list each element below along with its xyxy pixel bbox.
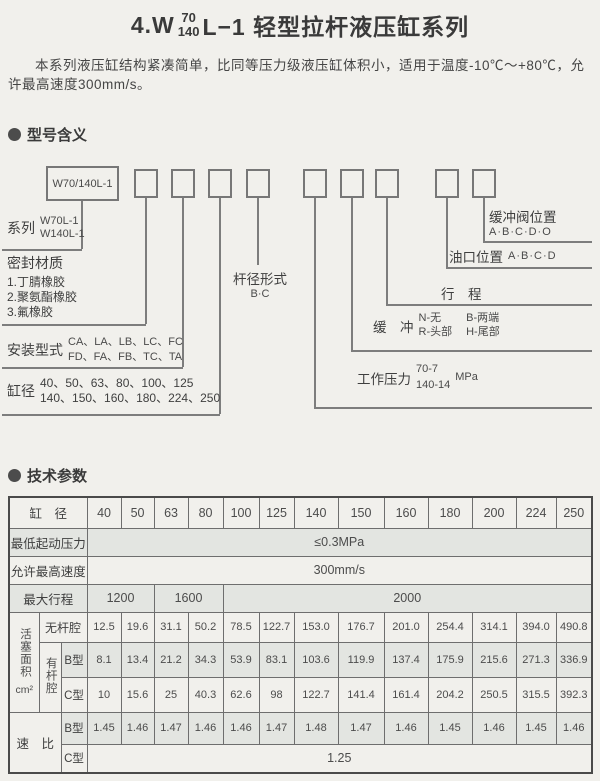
seal-label: 密封材质 <box>7 253 77 273</box>
row-label: B型 <box>61 642 87 677</box>
value-cell: 10 <box>87 677 121 712</box>
rod-side-vertical-text: 有杆腔 <box>44 657 56 695</box>
value-cell: 314.1 <box>472 612 516 642</box>
value-cell: 1.47 <box>259 712 294 744</box>
min-start-pressure-value: ≤0.3MPa <box>87 528 592 556</box>
connector-line <box>2 414 220 416</box>
value-cell: 103.6 <box>294 642 338 677</box>
tech-params-table: 缸 径 40506380100125140150160180200224250 … <box>8 496 593 774</box>
max-speed-row: 允许最高速度 300mm/s <box>9 556 592 584</box>
cushion-valve-options: A·B·C·D·O <box>489 226 557 239</box>
bore-header-cell: 40 <box>87 497 121 528</box>
connector-line <box>386 304 592 306</box>
code-box-pressure <box>303 169 327 198</box>
value-cell: 40.3 <box>188 677 223 712</box>
speed-ratio-c-row: C型 1.25 <box>9 744 592 773</box>
bore-label-group: 缸径 40、50、63、80、100、125 140、150、160、180、2… <box>7 376 220 406</box>
section-bullet-icon <box>8 469 21 482</box>
bore-header-cell: 63 <box>154 497 188 528</box>
cushion-option: H-尾部 <box>466 326 500 339</box>
value-cell: 336.9 <box>556 642 592 677</box>
cushion-valve-label: 缓冲阀位置 <box>489 206 557 226</box>
connector-line <box>351 198 353 350</box>
connector-line <box>386 198 388 304</box>
value-cell: 1.46 <box>384 712 428 744</box>
piston-area-group-label: 活塞面积 cm² <box>9 612 39 712</box>
row-label: C型 <box>61 744 87 773</box>
bore-header-label: 缸 径 <box>9 497 87 528</box>
pressure-label-group: 工作压力 70-7 140-14 MPa <box>357 363 478 392</box>
value-cell: 1.46 <box>472 712 516 744</box>
value-cell: 201.0 <box>384 612 428 642</box>
bore-header-cell: 224 <box>516 497 556 528</box>
max-stroke-value: 1600 <box>154 584 223 612</box>
value-cell: 254.4 <box>428 612 472 642</box>
model-code-diagram: W70/140L-1 系列 W70L-1 <box>0 157 600 419</box>
pressure-label: 工作压力 <box>357 368 411 388</box>
cushion-label-group: 缓 冲 N-无 B-两端 R-头部 H-尾部 <box>373 312 500 339</box>
connector-line <box>2 367 183 369</box>
value-cell: 315.5 <box>516 677 556 712</box>
value-cell: 1.46 <box>556 712 592 744</box>
title-fraction-bottom: 140 <box>178 25 200 39</box>
rod-side-group-label: 有杆腔 <box>39 642 61 712</box>
value-cell: 122.7 <box>294 677 338 712</box>
series-item: W70L-1 <box>40 215 85 228</box>
cushion-option: R-头部 <box>419 326 453 339</box>
value-cell: 15.6 <box>121 677 154 712</box>
value-cell: 176.7 <box>338 612 384 642</box>
speed-ratio-group-label: 速 比 <box>9 712 61 773</box>
value-cell: 1.47 <box>338 712 384 744</box>
pressure-unit: MPa <box>455 371 478 384</box>
value-cell: 1.46 <box>188 712 223 744</box>
value-cell: 83.1 <box>259 642 294 677</box>
code-box-bore <box>208 169 232 198</box>
value-cell: 1.48 <box>294 712 338 744</box>
value-cell: 1.45 <box>516 712 556 744</box>
mounting-codes: CA、LA、LB、LC、FC <box>68 335 183 350</box>
connector-line <box>314 198 316 407</box>
title-fraction: 70 140 <box>178 11 200 40</box>
connector-line <box>483 241 592 243</box>
connector-line <box>145 198 147 324</box>
bore-sizes: 40、50、63、80、100、125 <box>40 376 220 391</box>
value-cell: 271.3 <box>516 642 556 677</box>
bore-header-cell: 80 <box>188 497 223 528</box>
piston-area-rod-b-row: 有杆腔 B型 8.113.421.234.353.983.1103.6119.9… <box>9 642 592 677</box>
value-cell: 1.47 <box>154 712 188 744</box>
value-cell: 394.0 <box>516 612 556 642</box>
seal-label-group: 密封材质 1.丁腈橡胶 2.聚氨酯橡胶 3.氟橡胶 <box>7 253 77 320</box>
value-cell: 161.4 <box>384 677 428 712</box>
value-cell: 250.5 <box>472 677 516 712</box>
bore-header-cell: 50 <box>121 497 154 528</box>
bore-header-cell: 150 <box>338 497 384 528</box>
cushion-option: N-无 <box>419 312 453 325</box>
value-cell: 137.4 <box>384 642 428 677</box>
value-cell: 1.45 <box>428 712 472 744</box>
rod-type-options: B·C <box>224 288 296 301</box>
connector-line <box>314 407 592 409</box>
value-cell: 21.2 <box>154 642 188 677</box>
seal-item: 2.聚氨酯橡胶 <box>7 290 77 305</box>
row-label: B型 <box>61 712 87 744</box>
speed-ratio-b-row: 速 比 B型 1.451.461.471.461.461.471.481.471… <box>9 712 592 744</box>
table-header-row: 缸 径 40506380100125140150160180200224250 <box>9 497 592 528</box>
value-cell: 25 <box>154 677 188 712</box>
code-box-cushion <box>340 169 364 198</box>
piston-area-rod-c-row: C型 1015.62540.362.698122.7141.4161.4204.… <box>9 677 592 712</box>
value-cell: 34.3 <box>188 642 223 677</box>
mounting-label: 安装型式 <box>7 340 63 360</box>
connector-line <box>483 198 485 241</box>
intro-paragraph: 本系列液压缸结构紧凑简单，比同等压力级液压缸体积小，适用于温度-10℃～+80℃… <box>8 56 592 94</box>
value-cell: 50.2 <box>188 612 223 642</box>
piston-area-vertical-text: 活塞面积 <box>19 628 31 678</box>
value-cell: 119.9 <box>338 642 384 677</box>
max-stroke-value: 1200 <box>87 584 154 612</box>
mounting-codes: FD、FA、FB、TC、TA <box>68 350 183 365</box>
bore-sizes: 140、150、160、180、224、250 <box>40 391 220 406</box>
seal-item: 1.丁腈橡胶 <box>7 275 77 290</box>
min-start-pressure-row: 最低起动压力 ≤0.3MPa <box>9 528 592 556</box>
page-title: 4.W 70 140 L−1 轻型拉杆液压缸系列 <box>0 0 600 42</box>
max-stroke-value: 2000 <box>223 584 592 612</box>
value-cell: 490.8 <box>556 612 592 642</box>
connector-line <box>2 249 82 251</box>
pressure-range: 140-14 <box>416 379 450 392</box>
code-box-stroke <box>375 169 399 198</box>
value-cell: 98 <box>259 677 294 712</box>
title-fraction-top: 70 <box>181 11 195 25</box>
series-item: W140L-1 <box>40 228 85 241</box>
row-label: C型 <box>61 677 87 712</box>
code-box-rod-type <box>246 169 270 198</box>
value-cell: 1.46 <box>121 712 154 744</box>
title-prefix: 4.W <box>131 12 175 39</box>
rod-type-label-group: 杆径形式 B·C <box>224 268 296 301</box>
value-cell: 175.9 <box>428 642 472 677</box>
pressure-range: 70-7 <box>416 363 450 376</box>
section-bullet-icon <box>8 128 21 141</box>
value-cell: 204.2 <box>428 677 472 712</box>
value-cell: 62.6 <box>223 677 259 712</box>
code-box-seal <box>134 169 158 198</box>
port-position-label: 油口位置 <box>449 246 503 266</box>
piston-area-unit: cm² <box>10 684 39 696</box>
rod-type-label: 杆径形式 <box>224 268 296 288</box>
row-label: 允许最高速度 <box>9 556 87 584</box>
section-tech-params: 技术参数 <box>8 465 600 486</box>
row-label: 无杆腔 <box>39 612 87 642</box>
connector-line <box>351 350 592 352</box>
value-cell: 31.1 <box>154 612 188 642</box>
bore-header-cell: 125 <box>259 497 294 528</box>
stroke-label: 行 程 <box>441 283 482 303</box>
cushion-label: 缓 冲 <box>373 316 414 336</box>
bore-header-cell: 200 <box>472 497 516 528</box>
section-title: 型号含义 <box>27 124 87 145</box>
code-box-cushion-valve <box>472 169 496 198</box>
value-cell: 53.9 <box>223 642 259 677</box>
max-speed-value: 300mm/s <box>87 556 592 584</box>
connector-line <box>257 198 259 265</box>
value-cell: 122.7 <box>259 612 294 642</box>
row-label: 最低起动压力 <box>9 528 87 556</box>
bore-label: 缸径 <box>7 381 35 401</box>
mounting-label-group: 安装型式 CA、LA、LB、LC、FC FD、FA、FB、TC、TA <box>7 335 183 365</box>
code-box-mounting <box>171 169 195 198</box>
code-box-port-position <box>435 169 459 198</box>
title-suffix: L−1 轻型拉杆液压缸系列 <box>202 8 469 42</box>
value-cell: 215.6 <box>472 642 516 677</box>
port-position-label-group: 油口位置 A·B·C·D <box>449 246 557 266</box>
value-cell: 1.45 <box>87 712 121 744</box>
value-cell: 1.46 <box>223 712 259 744</box>
value-cell: 392.3 <box>556 677 592 712</box>
value-cell: 141.4 <box>338 677 384 712</box>
bore-header-cell: 140 <box>294 497 338 528</box>
value-cell: 153.0 <box>294 612 338 642</box>
section-model-meaning: 型号含义 <box>8 124 600 145</box>
cushion-valve-label-group: 缓冲阀位置 A·B·C·D·O <box>489 206 557 239</box>
document-page: 4.W 70 140 L−1 轻型拉杆液压缸系列 本系列液压缸结构紧凑简单，比同… <box>0 0 600 781</box>
value-cell: 12.5 <box>87 612 121 642</box>
connector-line <box>446 198 448 267</box>
connector-line <box>446 267 592 269</box>
section-title: 技术参数 <box>27 465 87 486</box>
series-label: 系列 <box>7 218 35 238</box>
bore-header-cell: 160 <box>384 497 428 528</box>
cushion-option: B-两端 <box>466 312 500 325</box>
bore-header-cell: 250 <box>556 497 592 528</box>
bore-header-cell: 180 <box>428 497 472 528</box>
piston-area-rodless-row: 活塞面积 cm² 无杆腔 12.519.631.150.278.5122.715… <box>9 612 592 642</box>
speed-ratio-c-value: 1.25 <box>87 744 592 773</box>
series-label-group: 系列 W70L-1 W140L-1 <box>7 215 85 241</box>
connector-line <box>2 324 146 326</box>
model-code-box: W70/140L-1 <box>46 166 119 201</box>
port-position-options: A·B·C·D <box>508 250 557 263</box>
value-cell: 13.4 <box>121 642 154 677</box>
row-label: 最大行程 <box>9 584 87 612</box>
value-cell: 8.1 <box>87 642 121 677</box>
value-cell: 78.5 <box>223 612 259 642</box>
max-stroke-row: 最大行程 1200 1600 2000 <box>9 584 592 612</box>
seal-item: 3.氟橡胶 <box>7 305 77 320</box>
value-cell: 19.6 <box>121 612 154 642</box>
bore-header-cell: 100 <box>223 497 259 528</box>
